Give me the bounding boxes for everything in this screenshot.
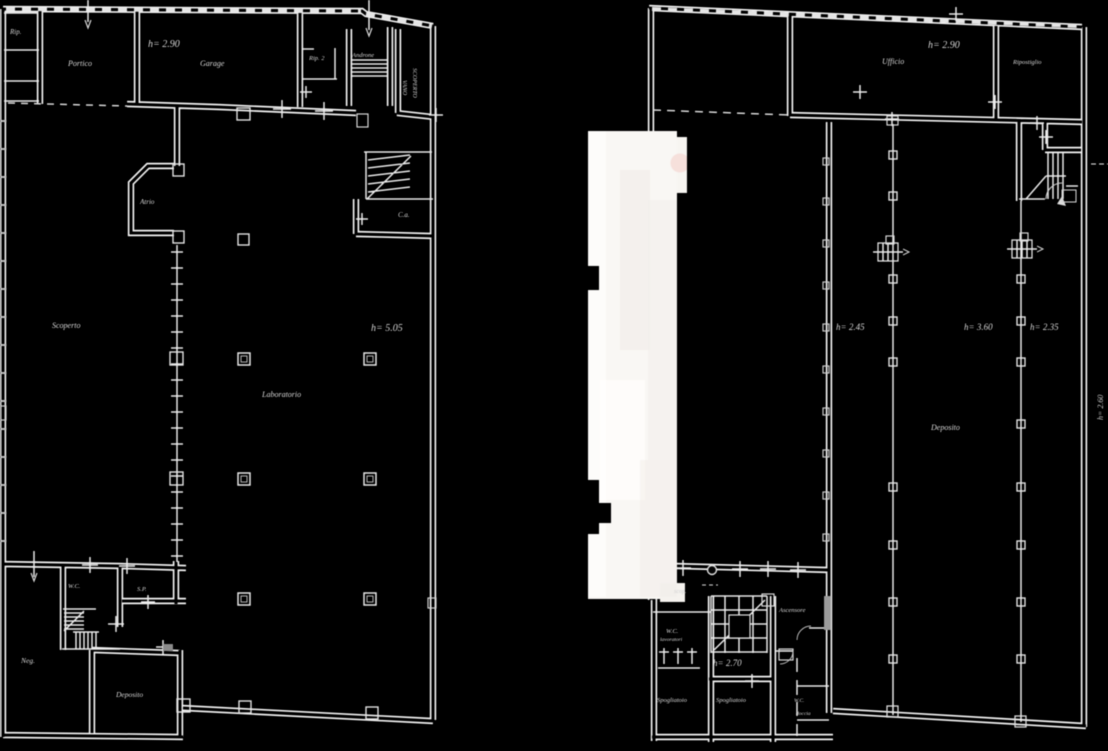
svg-text:Atrio: Atrio xyxy=(139,198,155,206)
svg-text:C.a.: C.a. xyxy=(398,211,410,219)
svg-text:VANO: VANO xyxy=(401,80,407,96)
svg-text:h= 2.90: h= 2.90 xyxy=(928,40,960,51)
svg-text:h= 2.70: h= 2.70 xyxy=(713,658,742,668)
svg-text:h= 2.35: h= 2.35 xyxy=(1030,322,1059,332)
svg-text:Portico: Portico xyxy=(67,59,92,68)
svg-text:h= 5.05: h= 5.05 xyxy=(371,323,403,334)
svg-text:Scoperto: Scoperto xyxy=(52,321,80,330)
svg-text:lavoratori: lavoratori xyxy=(660,637,683,643)
svg-text:Ascensore: Ascensore xyxy=(778,607,806,614)
svg-text:W.C.: W.C. xyxy=(794,698,805,704)
svg-text:Deposito: Deposito xyxy=(115,690,143,699)
svg-text:Garage: Garage xyxy=(200,59,225,68)
svg-text:Laboratorio: Laboratorio xyxy=(261,390,301,399)
svg-text:Rip. 2: Rip. 2 xyxy=(308,55,325,62)
svg-text:h= 2.45: h= 2.45 xyxy=(836,322,865,332)
svg-text:Deposito: Deposito xyxy=(930,423,960,432)
svg-text:Spogliatoio: Spogliatoio xyxy=(657,697,688,704)
svg-text:Ripostiglio: Ripostiglio xyxy=(1012,59,1042,66)
svg-text:Spogliatoio: Spogliatoio xyxy=(716,697,747,704)
svg-text:Rip.: Rip. xyxy=(9,28,22,36)
svg-text:S.P.: S.P. xyxy=(137,586,147,593)
svg-text:SCOPERTO: SCOPERTO xyxy=(411,68,417,99)
svg-text:h= 3.60: h= 3.60 xyxy=(964,322,993,332)
svg-text:W.C.: W.C. xyxy=(68,583,81,590)
svg-text:W.C.: W.C. xyxy=(666,628,679,635)
svg-text:scop.: scop. xyxy=(674,589,687,595)
svg-text:h= 2.60: h= 2.60 xyxy=(1096,395,1105,420)
svg-text:doccia: doccia xyxy=(796,711,811,717)
svg-text:Androne: Androne xyxy=(351,52,374,59)
svg-text:Ufficio: Ufficio xyxy=(882,57,904,66)
svg-text:Neg.: Neg. xyxy=(20,656,35,665)
svg-text:h= 2.90: h= 2.90 xyxy=(148,39,180,50)
